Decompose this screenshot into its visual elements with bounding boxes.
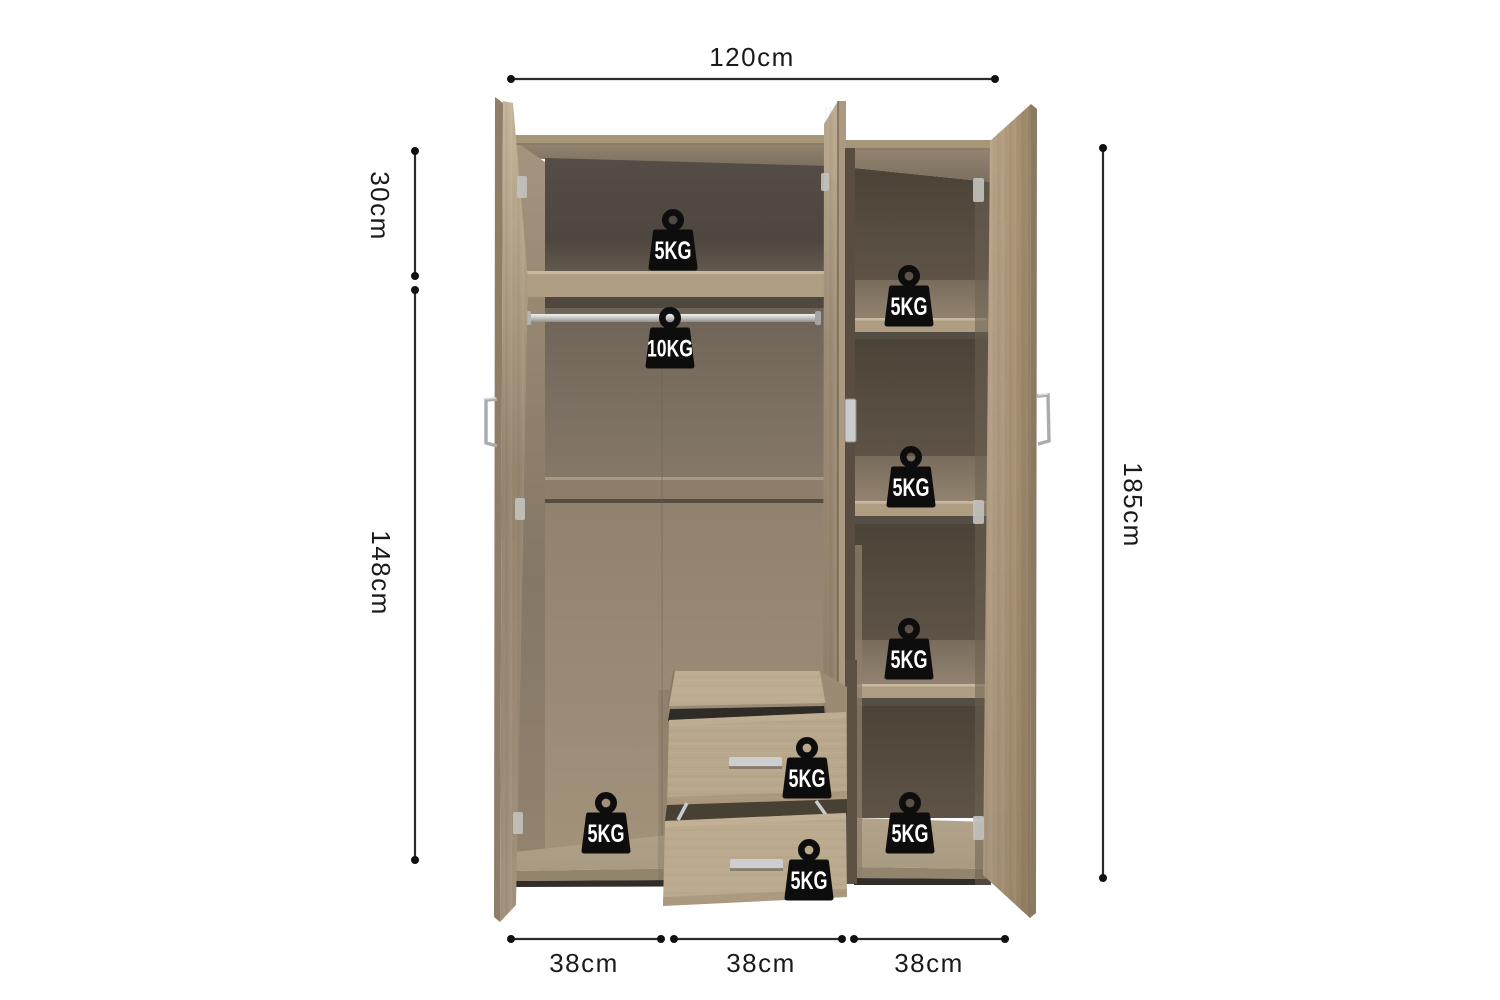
svg-text:10KG: 10KG xyxy=(647,336,693,363)
svg-text:5KG: 5KG xyxy=(655,237,692,265)
svg-text:30cm: 30cm xyxy=(365,171,395,241)
svg-text:38cm: 38cm xyxy=(894,948,964,978)
svg-text:5KG: 5KG xyxy=(588,820,625,848)
svg-text:185cm: 185cm xyxy=(1118,462,1148,548)
svg-text:148cm: 148cm xyxy=(366,530,396,616)
svg-text:5KG: 5KG xyxy=(891,646,928,674)
svg-text:120cm: 120cm xyxy=(709,42,795,72)
svg-text:5KG: 5KG xyxy=(892,820,929,848)
svg-text:5KG: 5KG xyxy=(891,293,928,321)
svg-text:38cm: 38cm xyxy=(726,948,796,978)
svg-text:5KG: 5KG xyxy=(893,474,930,502)
svg-text:5KG: 5KG xyxy=(791,867,828,895)
svg-text:5KG: 5KG xyxy=(789,765,826,793)
svg-text:38cm: 38cm xyxy=(549,948,619,978)
